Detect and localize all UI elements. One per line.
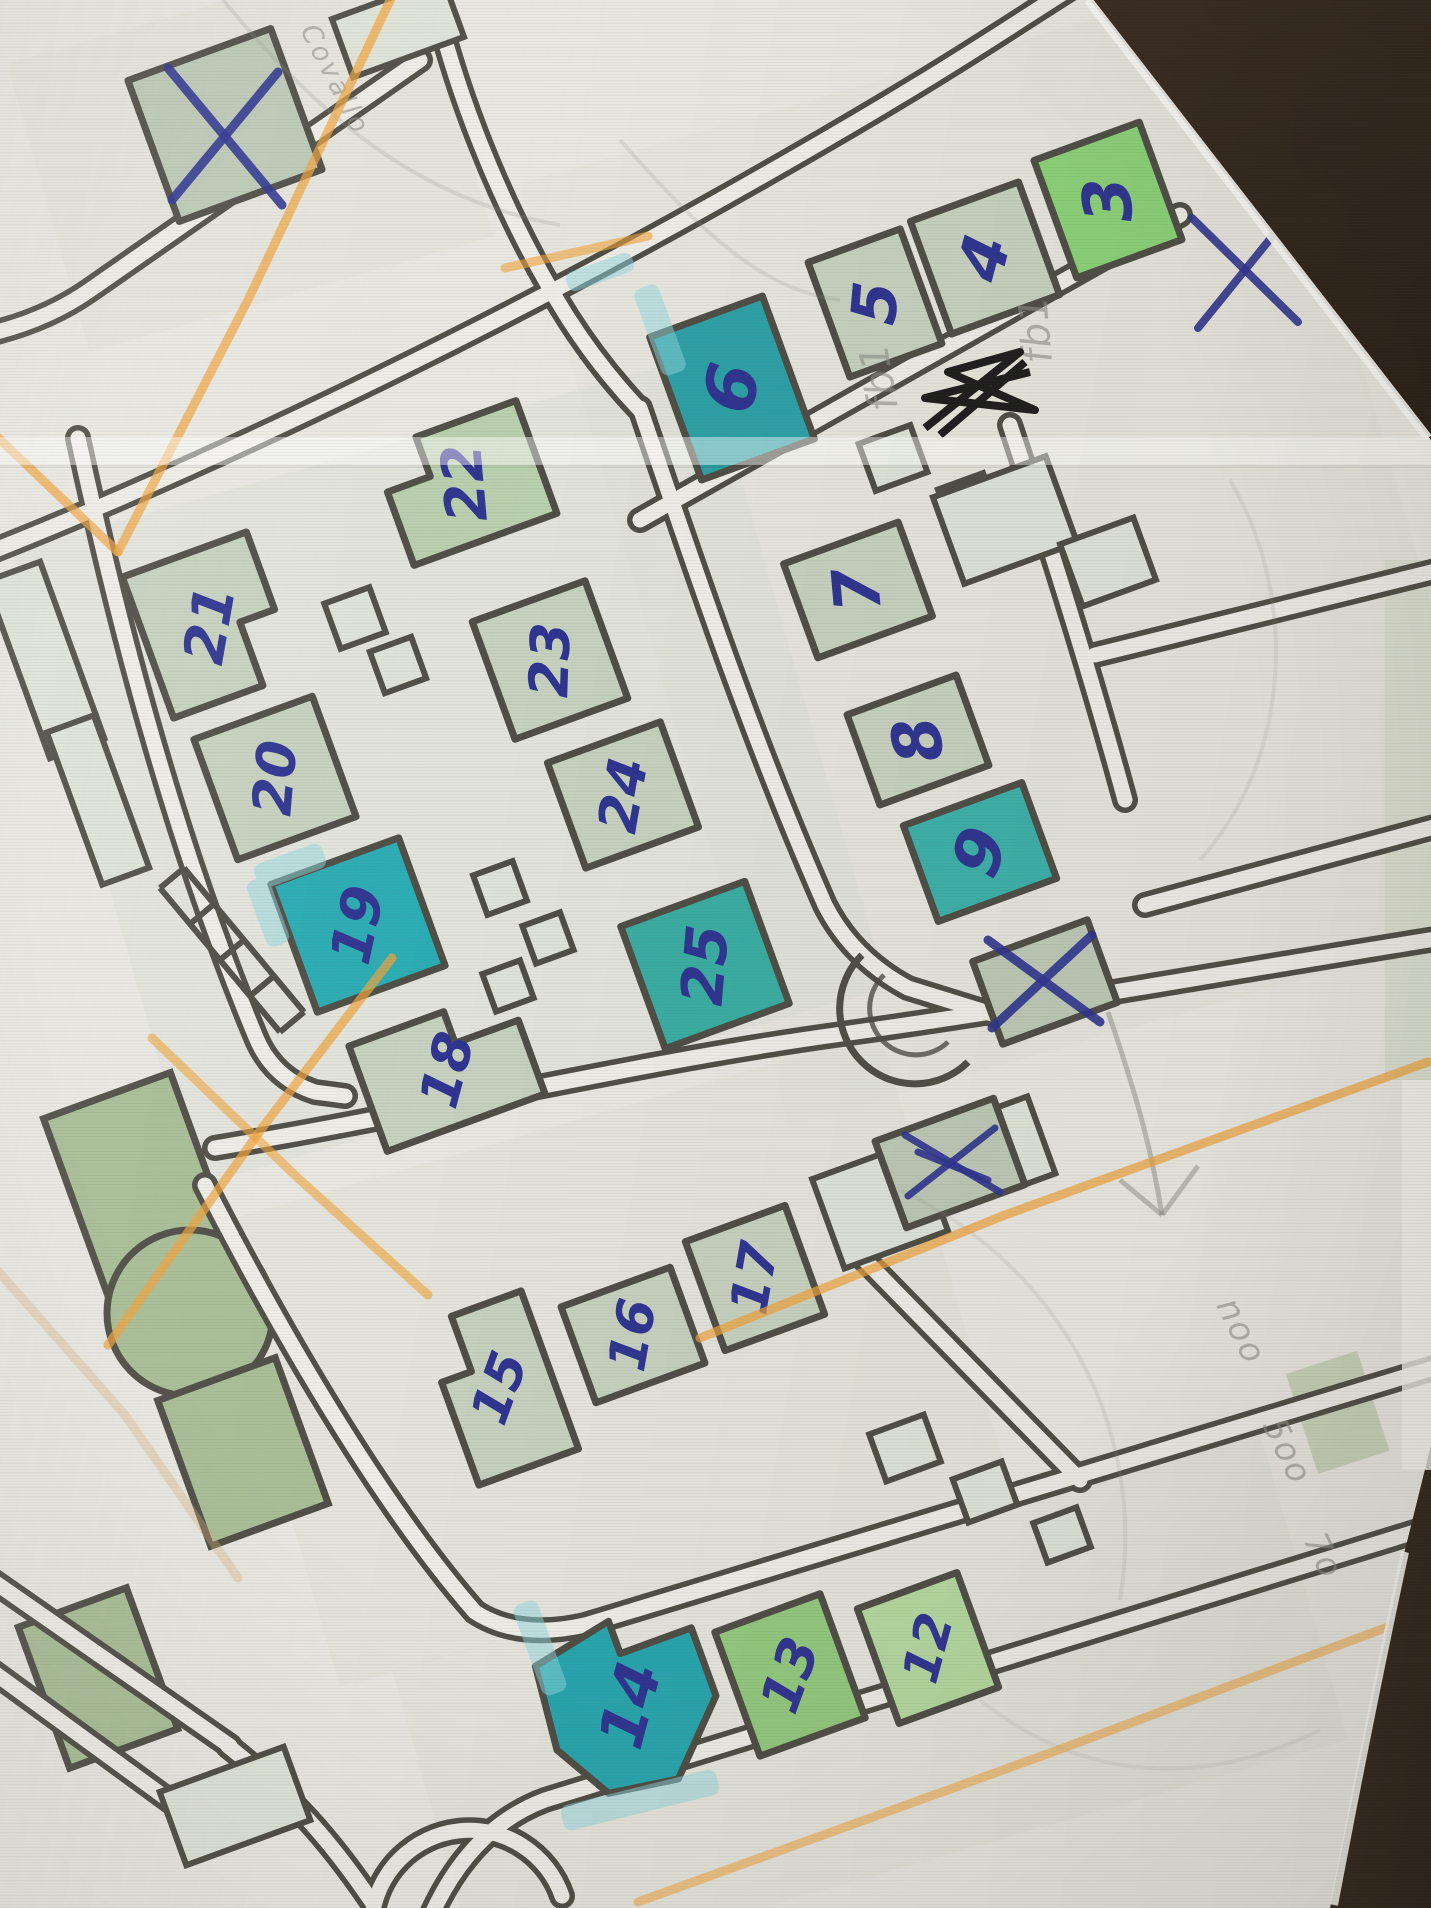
building-number-20: 20: [240, 738, 309, 818]
paper-crease: [0, 437, 1431, 465]
paper-curled-edge: [1402, 1080, 1431, 1470]
paper-crease-shadow: [0, 465, 1431, 468]
building-number-16: 16: [597, 1294, 669, 1376]
map-photo: 34567892221232024192518171615141312Coval…: [0, 0, 1431, 1908]
building-number-23: 23: [517, 621, 583, 698]
structure: [522, 912, 573, 963]
building-number-25: 25: [668, 922, 743, 1008]
building-number-24: 24: [585, 753, 660, 838]
street-map: 34567892221232024192518171615141312Coval…: [0, 0, 1431, 1908]
building-number-5: 5: [837, 278, 913, 327]
structure: [482, 960, 533, 1011]
building-number-3: 3: [1068, 174, 1149, 226]
building-number-21: 21: [171, 581, 249, 669]
building-number-7: 7: [819, 564, 897, 615]
